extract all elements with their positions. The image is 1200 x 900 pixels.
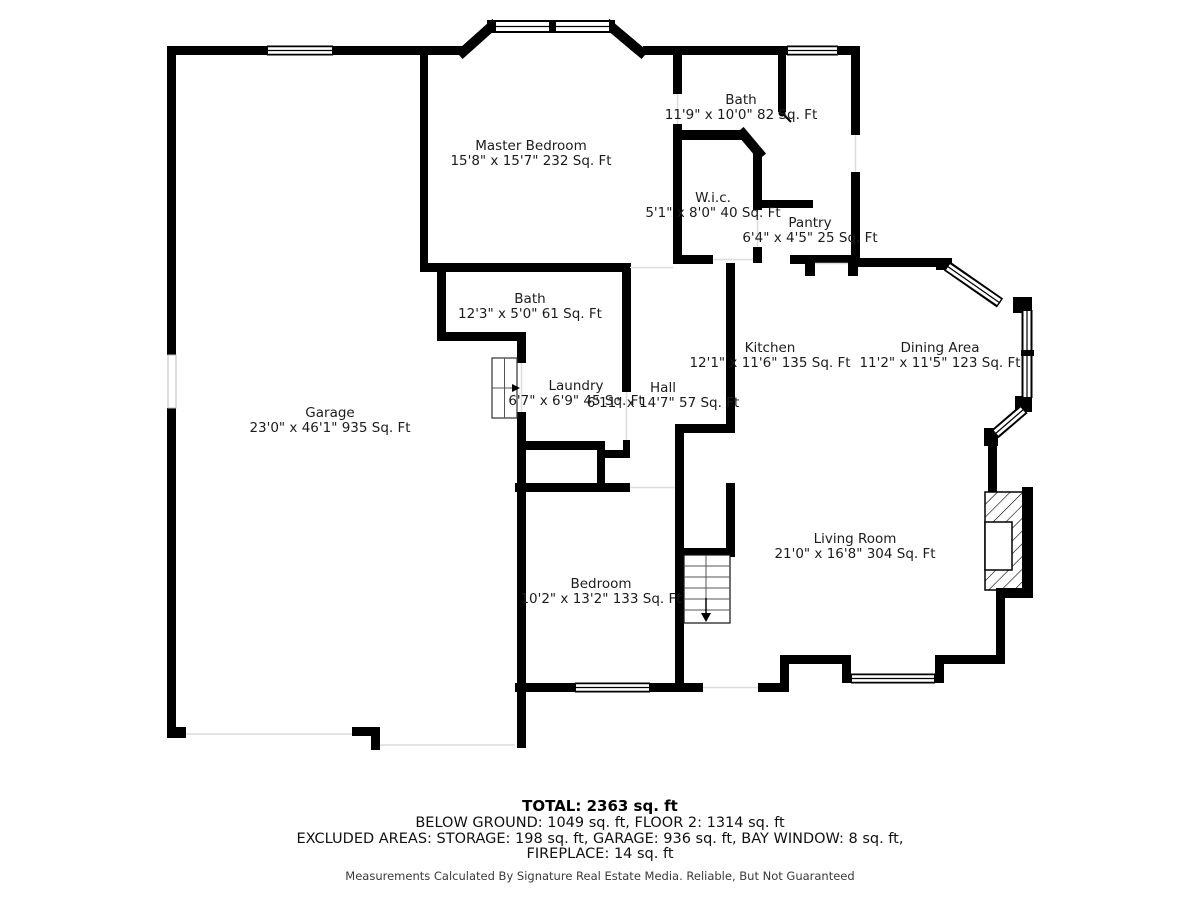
svg-text:Pantry: Pantry	[788, 215, 831, 231]
laundry-closet	[492, 358, 520, 418]
room-label-living-room: Living Room 21'0" x 16'8" 304 Sq. Ft	[774, 531, 935, 562]
floorplan-drawing: Master Bedroom 15'8" x 15'7" 232 Sq. Ft …	[0, 0, 1200, 900]
svg-text:23'0" x 46'1" 935 Sq. Ft: 23'0" x 46'1" 935 Sq. Ft	[249, 420, 410, 436]
room-label-bath-main: Bath 12'3" x 5'0" 61 Sq. Ft	[458, 291, 602, 322]
room-label-bedroom: Bedroom 10'2" x 13'2" 133 Sq. Ft	[520, 576, 681, 607]
svg-text:21'0" x 16'8" 304 Sq. Ft: 21'0" x 16'8" 304 Sq. Ft	[774, 546, 935, 562]
svg-text:11'9" x 10'0" 82 Sq. Ft: 11'9" x 10'0" 82 Sq. Ft	[665, 107, 818, 123]
svg-text:Laundry: Laundry	[548, 378, 603, 394]
staircase	[684, 555, 730, 623]
svg-text:15'8" x 15'7" 232 Sq. Ft: 15'8" x 15'7" 232 Sq. Ft	[450, 153, 611, 169]
svg-text:10'2" x 13'2" 133 Sq. Ft: 10'2" x 13'2" 133 Sq. Ft	[520, 591, 681, 607]
garage-side-window	[168, 355, 176, 408]
dining-bay-window-upper	[947, 266, 1000, 303]
disclaimer-text: Measurements Calculated By Signature Rea…	[345, 869, 854, 883]
svg-text:5'1" x 8'0" 40 Sq. Ft: 5'1" x 8'0" 40 Sq. Ft	[645, 205, 780, 221]
bay-top-windows	[495, 20, 610, 33]
svg-text:6'11" x 14'7" 57 Sq. Ft: 6'11" x 14'7" 57 Sq. Ft	[587, 395, 740, 411]
svg-text:Bath: Bath	[514, 291, 545, 307]
fireplace	[985, 492, 1025, 590]
room-label-hall: Hall 6'11" x 14'7" 57 Sq. Ft	[587, 380, 740, 411]
svg-text:W.i.c.: W.i.c.	[695, 190, 731, 206]
total-area-text: TOTAL: 2363 sq. ft	[522, 797, 678, 815]
svg-text:Kitchen: Kitchen	[745, 340, 796, 356]
summary-line-3: EXCLUDED AREAS: STORAGE: 198 sq. ft, GAR…	[297, 831, 904, 847]
svg-text:Bedroom: Bedroom	[570, 576, 631, 592]
svg-text:11'2" x 11'5" 123 Sq. Ft: 11'2" x 11'5" 123 Sq. Ft	[859, 355, 1020, 371]
floorplan-page: Master Bedroom 15'8" x 15'7" 232 Sq. Ft …	[0, 0, 1200, 900]
svg-text:Bath: Bath	[725, 92, 756, 108]
svg-text:Garage: Garage	[305, 405, 354, 421]
room-label-master-bedroom: Master Bedroom 15'8" x 15'7" 232 Sq. Ft	[450, 138, 611, 169]
svg-text:Hall: Hall	[650, 380, 676, 396]
firebox	[985, 522, 1012, 570]
summary-line-2: BELOW GROUND: 1049 sq. ft, FLOOR 2: 1314…	[415, 815, 785, 831]
dining-bay-window-middle	[1021, 310, 1034, 398]
room-labels: Master Bedroom 15'8" x 15'7" 232 Sq. Ft …	[249, 92, 1020, 607]
summary-line-4: FIREPLACE: 14 sq. ft	[526, 846, 673, 862]
svg-text:Dining Area: Dining Area	[901, 340, 980, 356]
svg-text:Living Room: Living Room	[814, 531, 897, 547]
svg-text:12'3" x 5'0" 61 Sq. Ft: 12'3" x 5'0" 61 Sq. Ft	[458, 306, 602, 322]
svg-text:12'1" x 11'6" 135 Sq. Ft: 12'1" x 11'6" 135 Sq. Ft	[689, 355, 850, 371]
svg-text:Master Bedroom: Master Bedroom	[475, 138, 586, 154]
dining-bay-window-lower	[995, 409, 1024, 434]
room-label-dining-area: Dining Area 11'2" x 11'5" 123 Sq. Ft	[859, 340, 1020, 371]
svg-text:6'4" x 4'5" 25 Sq. Ft: 6'4" x 4'5" 25 Sq. Ft	[742, 230, 877, 246]
room-label-garage: Garage 23'0" x 46'1" 935 Sq. Ft	[249, 405, 410, 436]
area-summary: TOTAL: 2363 sq. ft BELOW GROUND: 1049 sq…	[297, 797, 904, 883]
room-label-kitchen: Kitchen 12'1" x 11'6" 135 Sq. Ft	[689, 340, 850, 371]
room-label-bath-upper: Bath 11'9" x 10'0" 82 Sq. Ft	[665, 92, 818, 123]
